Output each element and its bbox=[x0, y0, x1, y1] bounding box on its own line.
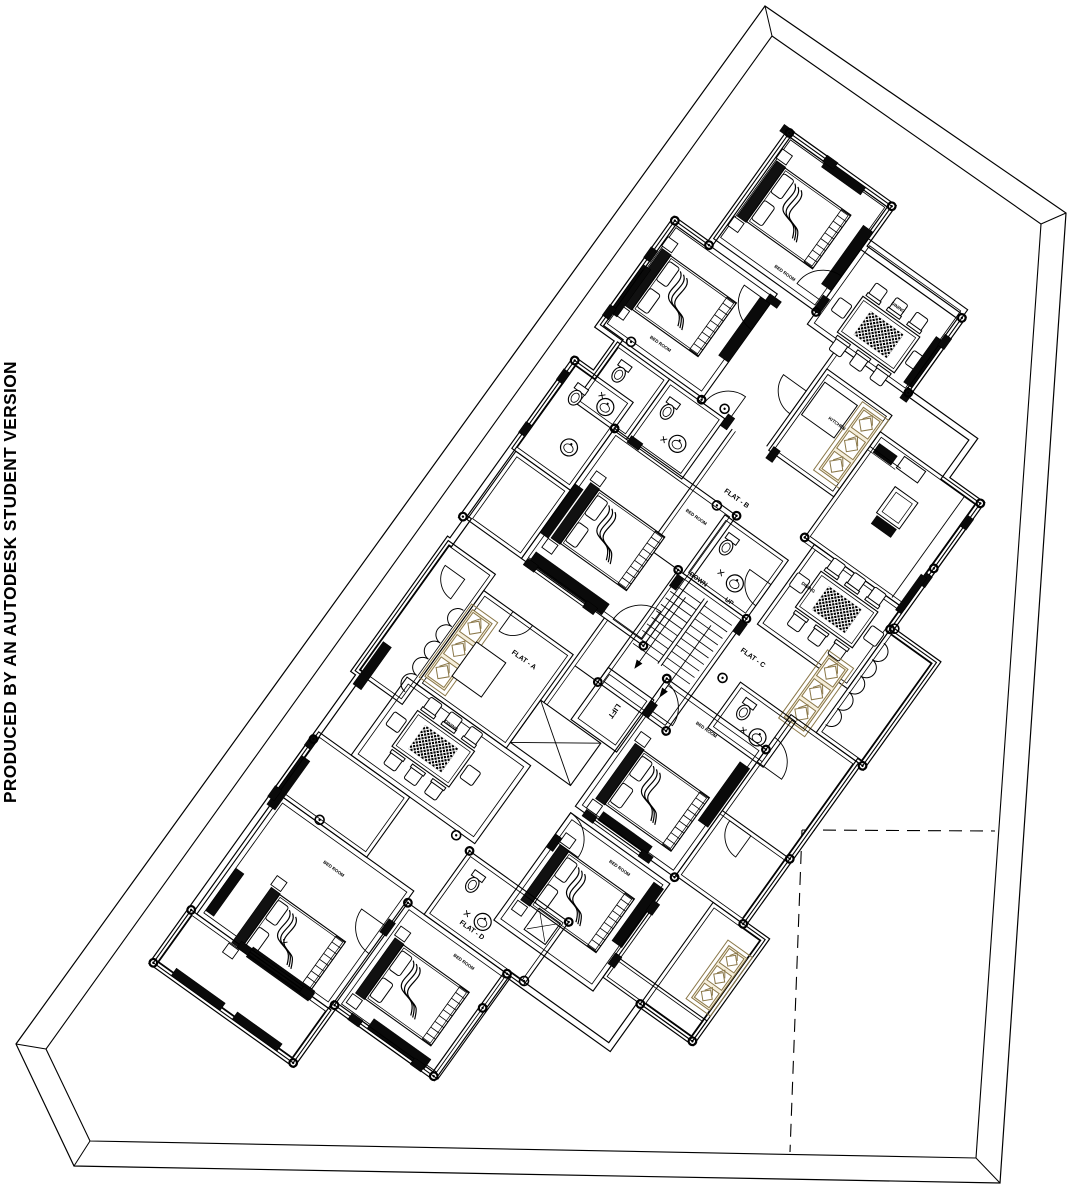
svg-text:PRODUCED BY AN AUTODESK STUDEN: PRODUCED BY AN AUTODESK STUDENT VERSION bbox=[0, 361, 20, 803]
